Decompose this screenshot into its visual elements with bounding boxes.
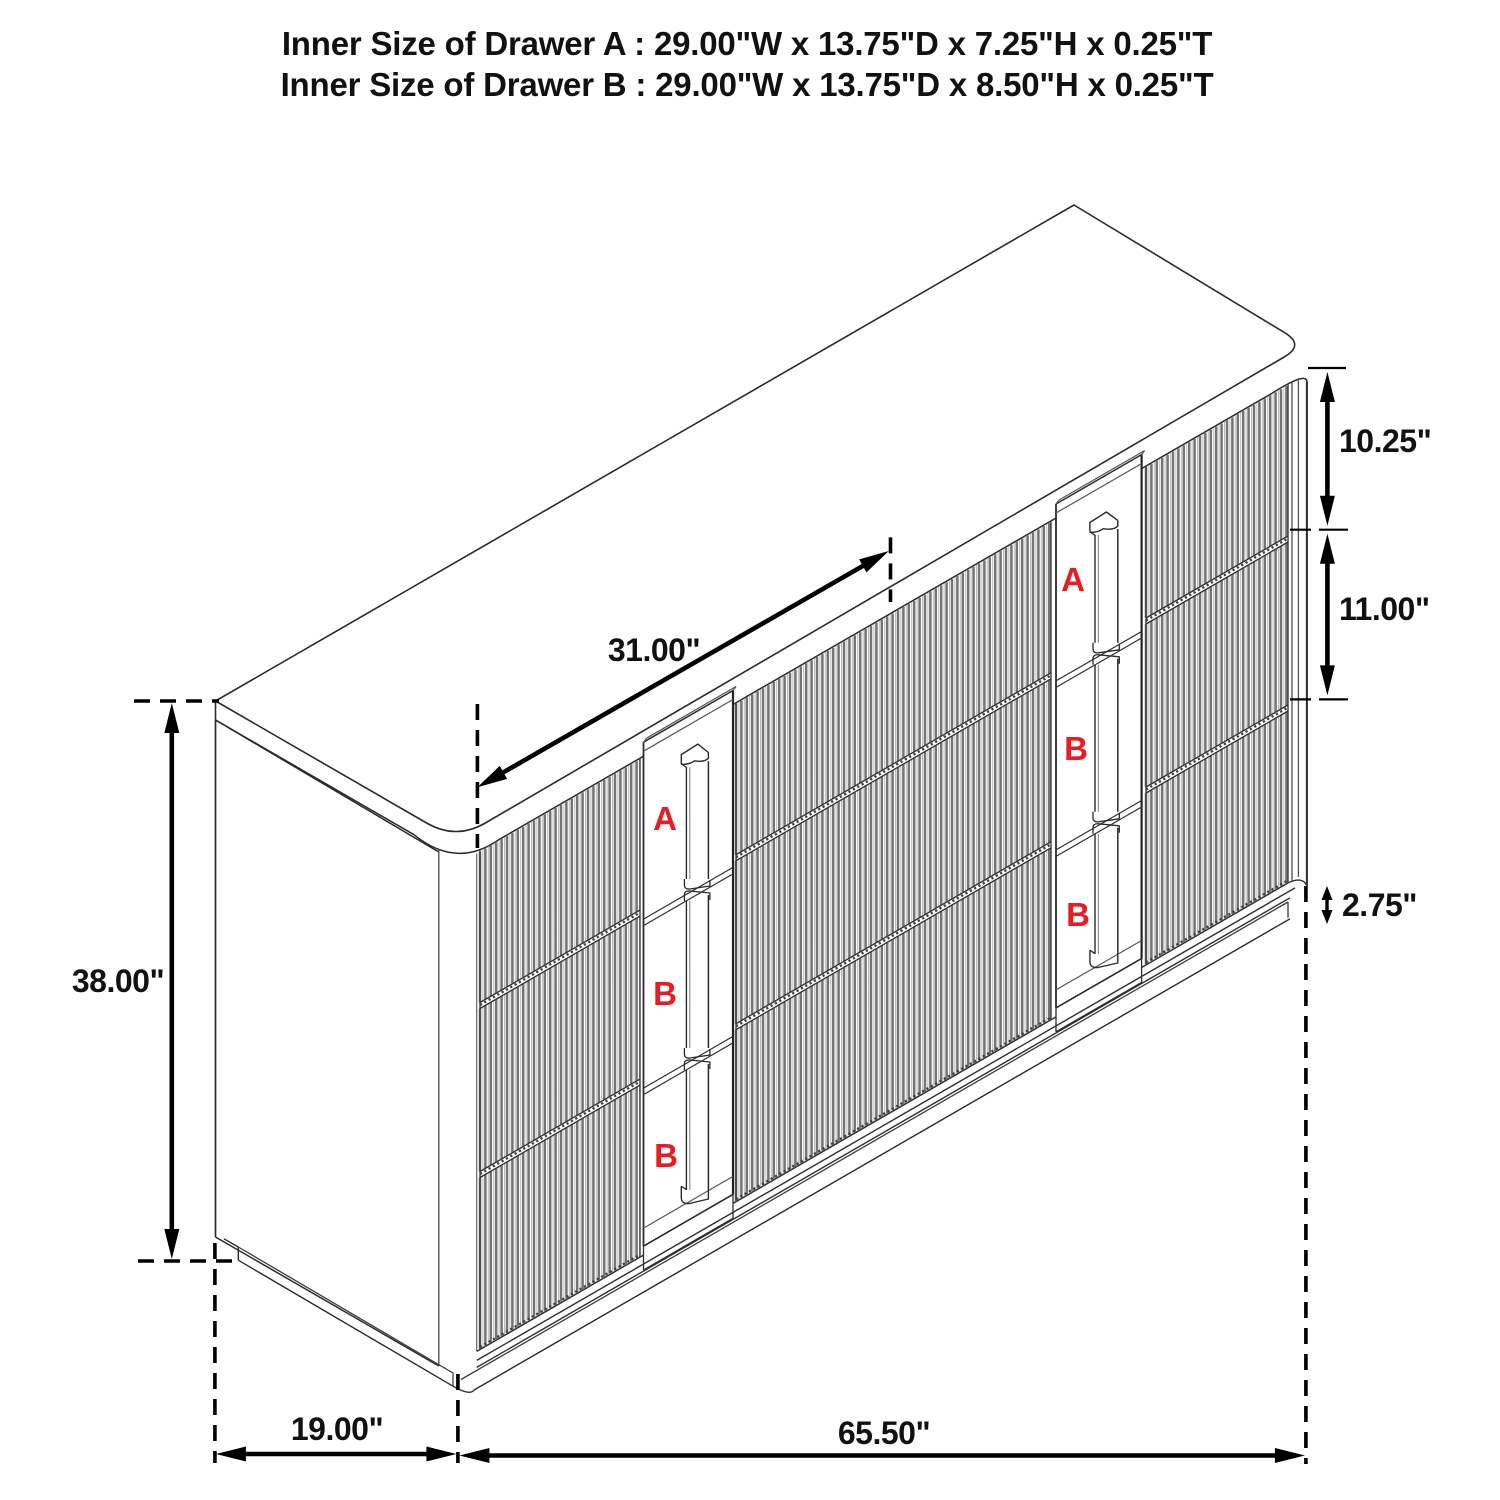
svg-text:Inner Size of Drawer B : 29.00: Inner Size of Drawer B : 29.00"W x 13.75…: [281, 66, 1214, 103]
svg-text:B: B: [1066, 896, 1090, 933]
svg-text:19.00": 19.00": [291, 1411, 383, 1447]
svg-text:A: A: [653, 800, 677, 837]
svg-text:B: B: [653, 975, 677, 1012]
svg-text:2.75": 2.75": [1342, 887, 1417, 923]
svg-text:38.00": 38.00": [72, 963, 164, 999]
svg-text:A: A: [1061, 561, 1085, 598]
svg-text:Inner Size of Drawer A : 29.00: Inner Size of Drawer A : 29.00"W x 13.75…: [282, 25, 1212, 62]
svg-text:31.00": 31.00": [608, 632, 700, 668]
svg-text:11.00": 11.00": [1339, 591, 1429, 627]
svg-text:B: B: [654, 1137, 678, 1174]
svg-text:B: B: [1064, 730, 1088, 767]
svg-text:65.50": 65.50": [838, 1415, 930, 1451]
svg-text:10.25": 10.25": [1339, 423, 1431, 459]
